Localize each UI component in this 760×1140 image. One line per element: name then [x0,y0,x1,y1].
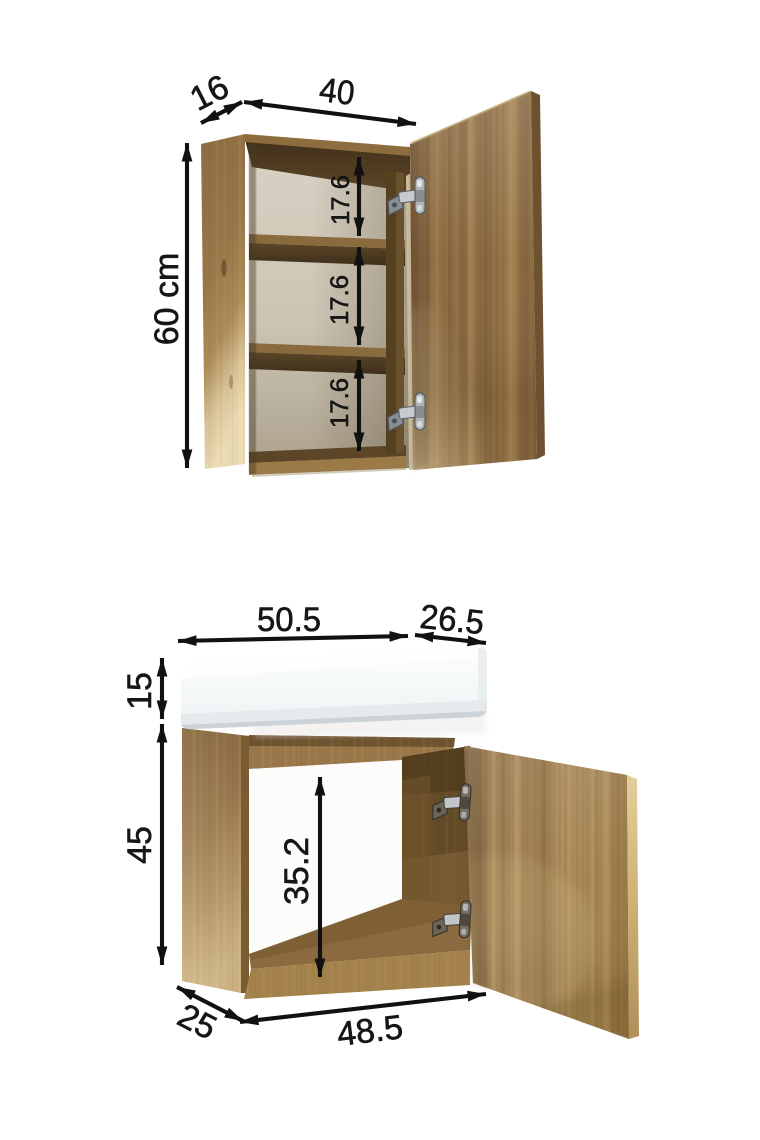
svg-text:26.5: 26.5 [418,598,486,642]
svg-text:45: 45 [121,826,159,864]
svg-text:60 cm: 60 cm [148,253,186,346]
svg-text:40: 40 [317,71,356,113]
svg-text:35.2: 35.2 [278,837,316,905]
svg-text:15: 15 [121,672,159,710]
svg-text:17.6: 17.6 [326,275,354,325]
svg-text:17.6: 17.6 [326,378,354,428]
svg-text:17.6: 17.6 [327,175,355,225]
svg-text:50.5: 50.5 [257,601,321,639]
svg-text:48.5: 48.5 [335,1008,405,1054]
